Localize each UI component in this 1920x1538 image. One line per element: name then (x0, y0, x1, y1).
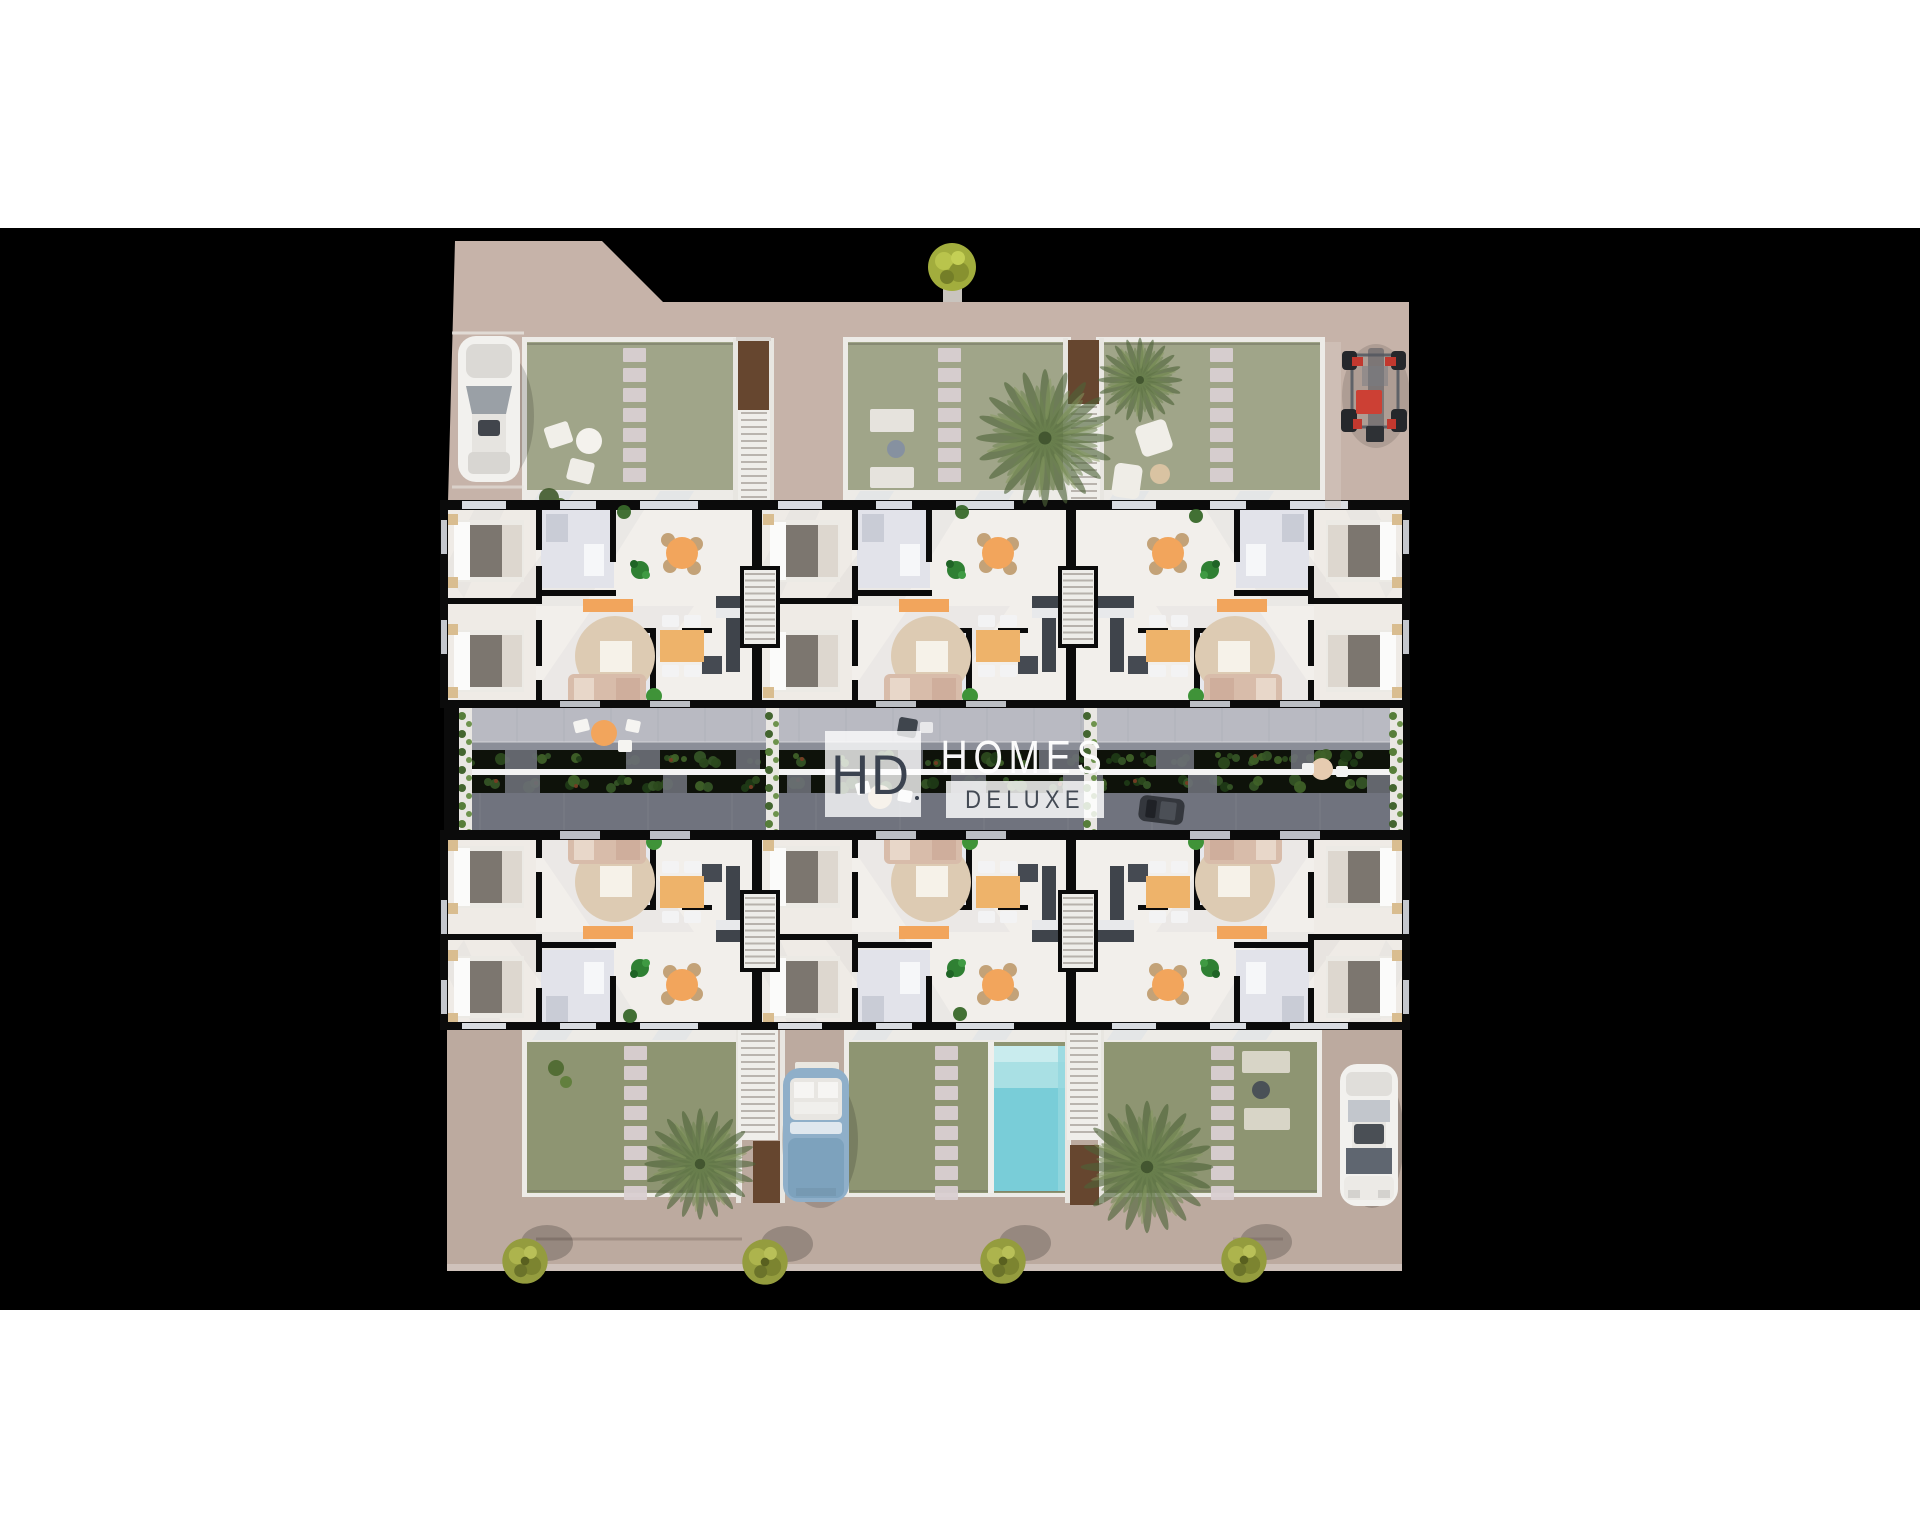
svg-text:HD: HD (831, 744, 911, 807)
svg-text:DELUXE: DELUXE (965, 786, 1085, 814)
svg-text:HOMES: HOMES (941, 731, 1108, 782)
